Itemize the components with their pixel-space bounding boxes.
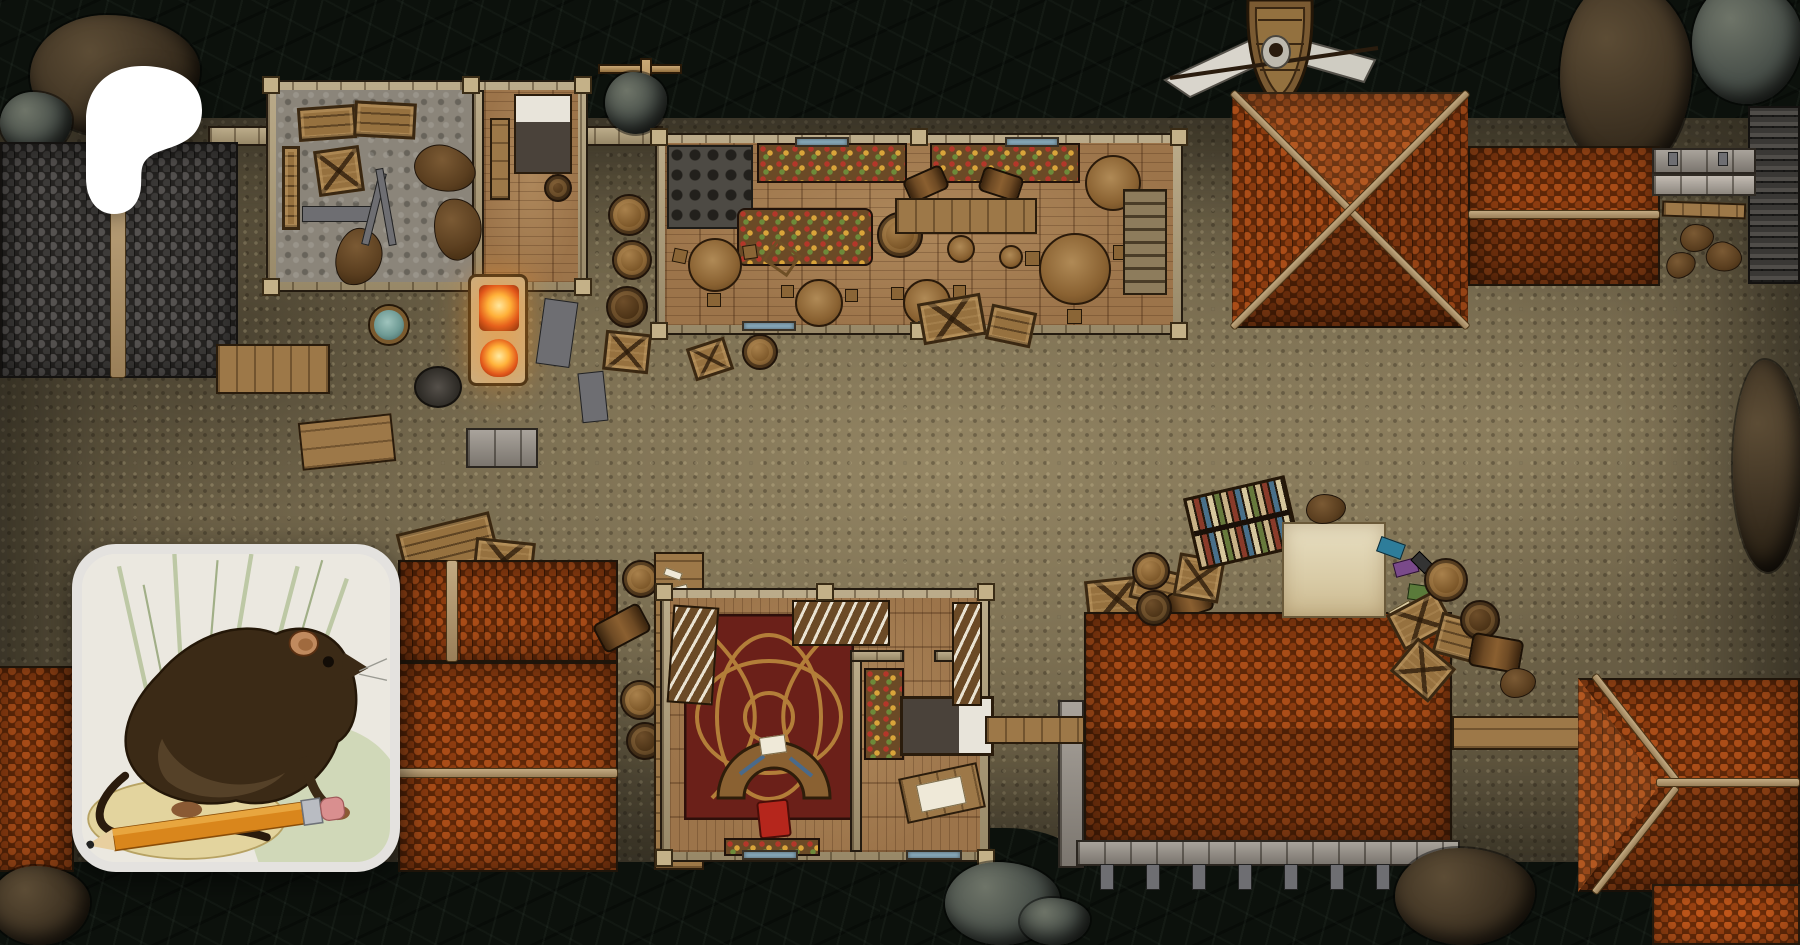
roof-southwest-upper: [398, 560, 618, 662]
window: [1005, 137, 1059, 147]
study-house: [660, 588, 990, 862]
inner-wall: [850, 650, 904, 662]
round-table: [688, 238, 742, 292]
hip-roof-pyramid: [1232, 92, 1468, 328]
rock-east-cliff: [1733, 360, 1800, 572]
crate-cluster: [1380, 550, 1530, 710]
wall-shelf: [282, 146, 300, 230]
weapon-rack: [302, 206, 374, 222]
small-table: [999, 245, 1023, 269]
crescent-desk: [712, 734, 836, 800]
barrel: [1136, 590, 1172, 626]
firepit: [414, 366, 462, 408]
red-chair: [756, 798, 792, 839]
side-counter: [864, 668, 904, 760]
barrel: [1132, 552, 1170, 590]
bar-table: [895, 198, 1037, 234]
bench: [1662, 201, 1747, 220]
patreon-map-preview: [0, 0, 1800, 945]
scroll-rack: [792, 600, 890, 646]
gable-ridge: [1468, 210, 1660, 219]
forge-fire: [479, 285, 519, 331]
roof-west-edge: [0, 666, 74, 872]
scroll-rack: [667, 605, 720, 706]
small-table: [947, 235, 975, 263]
wall-shelf: [952, 602, 982, 706]
room-divider: [472, 90, 484, 282]
crate: [602, 330, 652, 375]
window: [795, 137, 849, 147]
barrel: [742, 334, 778, 370]
round-table-large: [1039, 233, 1111, 305]
creator-avatar: [72, 544, 400, 872]
barrel: [612, 240, 652, 280]
roof-southwest-lower: [398, 662, 618, 872]
barrel: [608, 194, 650, 236]
forge-furnace: [468, 274, 528, 386]
shelf-crate: [297, 104, 357, 142]
storage-house: [266, 80, 588, 292]
anvil: [536, 298, 579, 368]
side-table: [490, 118, 510, 200]
forge-yard: [200, 292, 620, 492]
food-counter: [757, 143, 907, 183]
armor-stand: [577, 371, 608, 423]
work-bench: [298, 413, 397, 471]
window: [742, 850, 798, 860]
sack: [1306, 494, 1346, 524]
bed: [514, 94, 572, 174]
round-table: [795, 279, 843, 327]
crate: [313, 145, 365, 197]
dock-bridge: [1452, 716, 1580, 750]
barrel: [606, 286, 648, 328]
stall-awning: [1282, 522, 1386, 618]
forge-hearth: [480, 339, 518, 377]
shelf-crate: [353, 100, 417, 139]
stone-block: [466, 428, 538, 468]
log-pile: [216, 344, 330, 394]
pier-ledge: [1076, 840, 1460, 866]
quench-tub: [370, 306, 408, 344]
dock-walkway: [985, 716, 1085, 744]
patreon-logo-icon: [76, 64, 212, 218]
inner-wall: [850, 650, 862, 852]
stone-pier-northeast: [1652, 148, 1756, 278]
corner-house-lower-roof: [1652, 884, 1800, 945]
window: [906, 850, 962, 860]
staircase: [1123, 189, 1167, 295]
window: [742, 321, 796, 331]
sack: [1664, 249, 1699, 281]
corner-house-roof: [1578, 678, 1800, 892]
floor-basin: [544, 174, 572, 202]
